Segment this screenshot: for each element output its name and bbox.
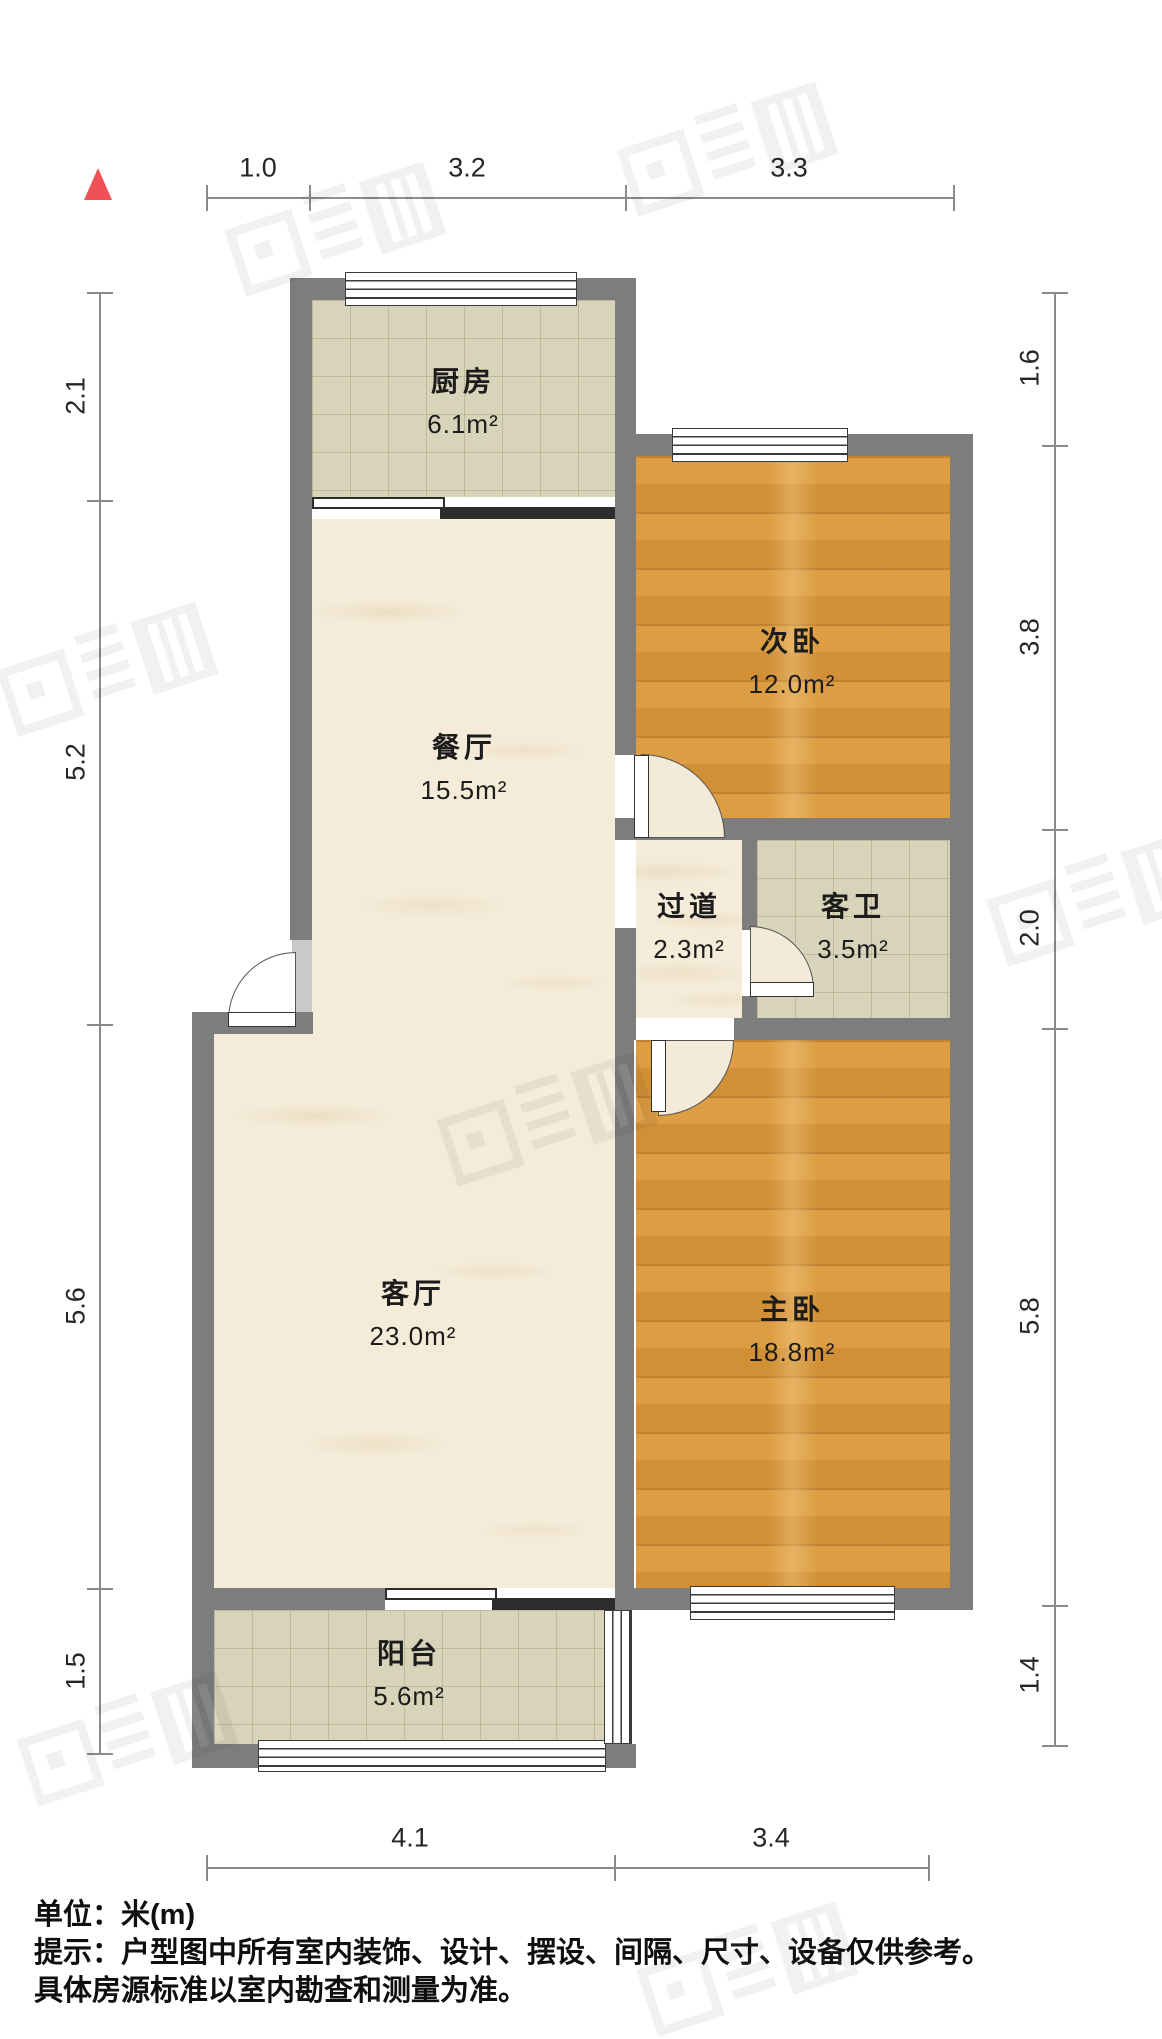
floorplan-page: { "rooms": { "kitchen": {"name": "厨房", "… (0, 0, 1162, 2038)
master-bedroom-window-icon (690, 1586, 895, 1620)
wall-bath-left (742, 840, 757, 930)
dim-line-bottom (206, 1867, 930, 1869)
wall-lower-left (192, 1012, 214, 1768)
room-label-master-bedroom: 主卧 18.8m² (749, 1288, 836, 1368)
room-label-living: 客厅 23.0m² (370, 1272, 457, 1352)
kitchen-sliding-door-icon-2 (440, 507, 615, 519)
dim-left-3: 1.5 (61, 1652, 92, 1690)
balcony-sliding-door-icon (385, 1588, 497, 1600)
room-label-second-bedroom: 次卧 12.0m² (749, 620, 836, 700)
dim-tick (1042, 292, 1068, 294)
dim-right-0: 1.6 (1015, 349, 1046, 387)
wall-master-left (615, 1040, 634, 1588)
dim-bottom-1: 3.4 (752, 1823, 790, 1854)
dim-tick (1042, 1028, 1068, 1030)
dim-left-0: 2.1 (61, 377, 92, 415)
dim-tick (87, 1024, 113, 1026)
dim-left-1: 5.2 (61, 743, 92, 781)
wall-balcony-bottom-right (604, 1744, 636, 1768)
master-door-icon (651, 1040, 666, 1112)
dim-tick (309, 185, 311, 211)
second-bedroom-window-icon (672, 428, 848, 462)
guest-bath-door-icon (750, 982, 814, 997)
dim-right-2: 2.0 (1015, 909, 1046, 947)
wall-upper-left (290, 278, 312, 940)
entry-door-icon (228, 1012, 296, 1027)
dim-left-2: 5.6 (61, 1287, 92, 1325)
dim-line-top (206, 197, 955, 199)
dim-bottom-0: 4.1 (391, 1823, 429, 1854)
dim-top-2: 3.3 (770, 153, 808, 184)
dim-tick (87, 1588, 113, 1590)
dim-right-3: 5.8 (1015, 1297, 1046, 1335)
second-bedroom-door-icon (634, 755, 649, 838)
balcony-bottom-window-icon (258, 1740, 606, 1772)
wall-middle-upper (615, 278, 636, 755)
dim-tick (1042, 829, 1068, 831)
watermark-logo (0, 601, 206, 729)
dim-right-4: 1.4 (1015, 1656, 1046, 1694)
watermark-logo (614, 81, 826, 209)
dim-tick (1042, 1745, 1068, 1747)
room-label-balcony: 阳台 5.6m² (373, 1632, 444, 1712)
room-label-kitchen: 厨房 6.1m² (427, 360, 498, 440)
kitchen-sliding-door-icon (312, 497, 445, 509)
dim-tick (614, 1855, 616, 1881)
dim-tick (1042, 445, 1068, 447)
dim-tick (928, 1855, 930, 1881)
dim-right-1: 3.8 (1015, 618, 1046, 656)
north-arrow-icon (84, 168, 112, 200)
dim-tick (1042, 1605, 1068, 1607)
dim-tick (87, 292, 113, 294)
wall-balcony-bottom-left (192, 1744, 258, 1768)
footer-disclaimer: 单位：米(m) 提示：户型图中所有室内装饰、设计、摆设、间隔、尺寸、设备仅供参考… (34, 1896, 991, 2010)
room-label-guest-bath: 客卫 3.5m² (817, 885, 888, 965)
master-door-opening (636, 1018, 734, 1040)
footer-note-line2: 具体房源标准以室内勘查和测量为准。 (34, 1972, 991, 2010)
room-label-hallway: 过道 2.3m² (653, 885, 724, 965)
dim-tick (87, 1753, 113, 1755)
wall-middle-hallway (615, 928, 636, 1018)
dim-tick (625, 185, 627, 211)
watermark-logo (984, 831, 1162, 959)
dim-tick (206, 185, 208, 211)
dim-top-1: 3.2 (448, 153, 486, 184)
kitchen-window-icon (345, 272, 577, 306)
dim-line-right (1054, 292, 1056, 1747)
wall-bath-left-stub (742, 996, 757, 1018)
room-label-dining: 餐厅 15.5m² (421, 726, 508, 806)
footer-unit-line: 单位：米(m) (34, 1896, 991, 1934)
dim-tick (953, 185, 955, 211)
footer-note-line1: 提示：户型图中所有室内装饰、设计、摆设、间隔、尺寸、设备仅供参考。 (34, 1934, 991, 1972)
balcony-sliding-door-icon-2 (492, 1598, 615, 1610)
dim-tick (206, 1855, 208, 1881)
wall-living-balcony (214, 1588, 385, 1610)
dim-tick (87, 500, 113, 502)
entry-door-arc (228, 952, 296, 1020)
balcony-side-window-icon (604, 1610, 632, 1744)
dim-top-0: 1.0 (239, 153, 277, 184)
